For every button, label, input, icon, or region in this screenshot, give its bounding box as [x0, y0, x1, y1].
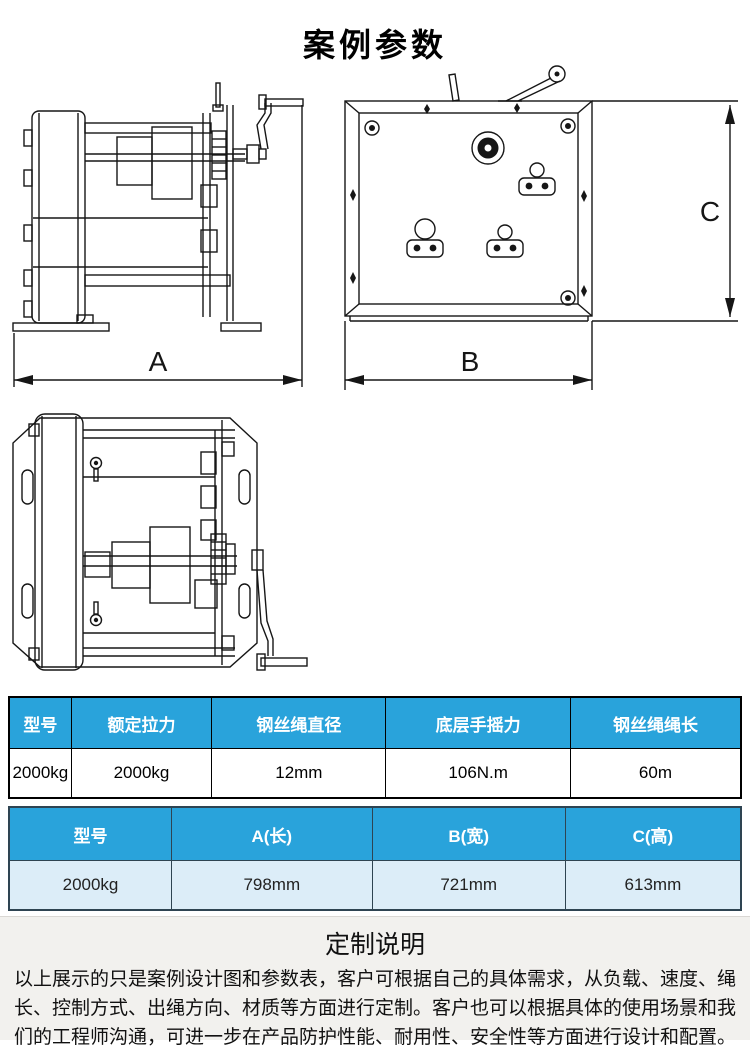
spec-value-rated-pull: 2000kg — [71, 749, 212, 799]
winch-front-view-svg: C B — [330, 58, 750, 398]
spec-value-rope-length: 60m — [570, 749, 741, 799]
spec-table-data-row: 2000kg 2000kg 12mm 106N.m 60m — [9, 749, 741, 799]
top-view-drawing — [5, 408, 315, 693]
spec-value-model: 2000kg — [9, 749, 71, 799]
dim-value-height-c: 613mm — [565, 861, 741, 911]
dim-header-height-c: C(高) — [565, 807, 741, 861]
shackle-bracket — [519, 163, 555, 195]
dimension-c-label: C — [700, 196, 720, 227]
customization-note-body: 以上展示的只是案例设计图和参数表，客户可根据自己的具体需求，从负载、速度、绳长、… — [14, 965, 736, 1052]
spec-header-rated-pull: 额定拉力 — [71, 697, 212, 749]
dim-value-model: 2000kg — [9, 861, 172, 911]
side-view-drawing: A — [5, 75, 310, 395]
shackle-bracket — [407, 219, 443, 257]
spec-header-crank-force: 底层手摇力 — [386, 697, 570, 749]
dim-header-width-b: B(宽) — [372, 807, 565, 861]
customization-note-section: 定制说明 以上展示的只是案例设计图和参数表，客户可根据自己的具体需求，从负载、速… — [0, 916, 750, 1040]
dim-value-length-a: 798mm — [172, 861, 373, 911]
dimension-table: 型号 A(长) B(宽) C(高) 2000kg 798mm 721mm 613… — [8, 806, 742, 911]
dimension-a-label: A — [149, 346, 168, 377]
winch-side-view-svg: A — [5, 75, 310, 395]
dim-table-data-row: 2000kg 798mm 721mm 613mm — [9, 861, 741, 911]
dim-table-header-row: 型号 A(长) B(宽) C(高) — [9, 807, 741, 861]
spec-table: 型号 额定拉力 钢丝绳直径 底层手摇力 钢丝绳绳长 2000kg 2000kg … — [8, 696, 742, 799]
spec-value-rope-diameter: 12mm — [212, 749, 386, 799]
winch-top-view-svg — [5, 408, 315, 693]
spec-table-header-row: 型号 额定拉力 钢丝绳直径 底层手摇力 钢丝绳绳长 — [9, 697, 741, 749]
dimension-b-label: B — [461, 346, 480, 377]
spec-header-rope-length: 钢丝绳绳长 — [570, 697, 741, 749]
spec-header-rope-diameter: 钢丝绳直径 — [212, 697, 386, 749]
spec-header-model: 型号 — [9, 697, 71, 749]
dim-value-width-b: 721mm — [372, 861, 565, 911]
shackle-bracket — [487, 225, 523, 257]
dim-header-length-a: A(长) — [172, 807, 373, 861]
customization-note-title: 定制说明 — [0, 925, 750, 961]
front-view-drawing: C B — [330, 58, 750, 398]
product-parameter-page: 案例参数 — [0, 0, 750, 1040]
dim-header-model: 型号 — [9, 807, 172, 861]
spec-value-crank-force: 106N.m — [386, 749, 570, 799]
